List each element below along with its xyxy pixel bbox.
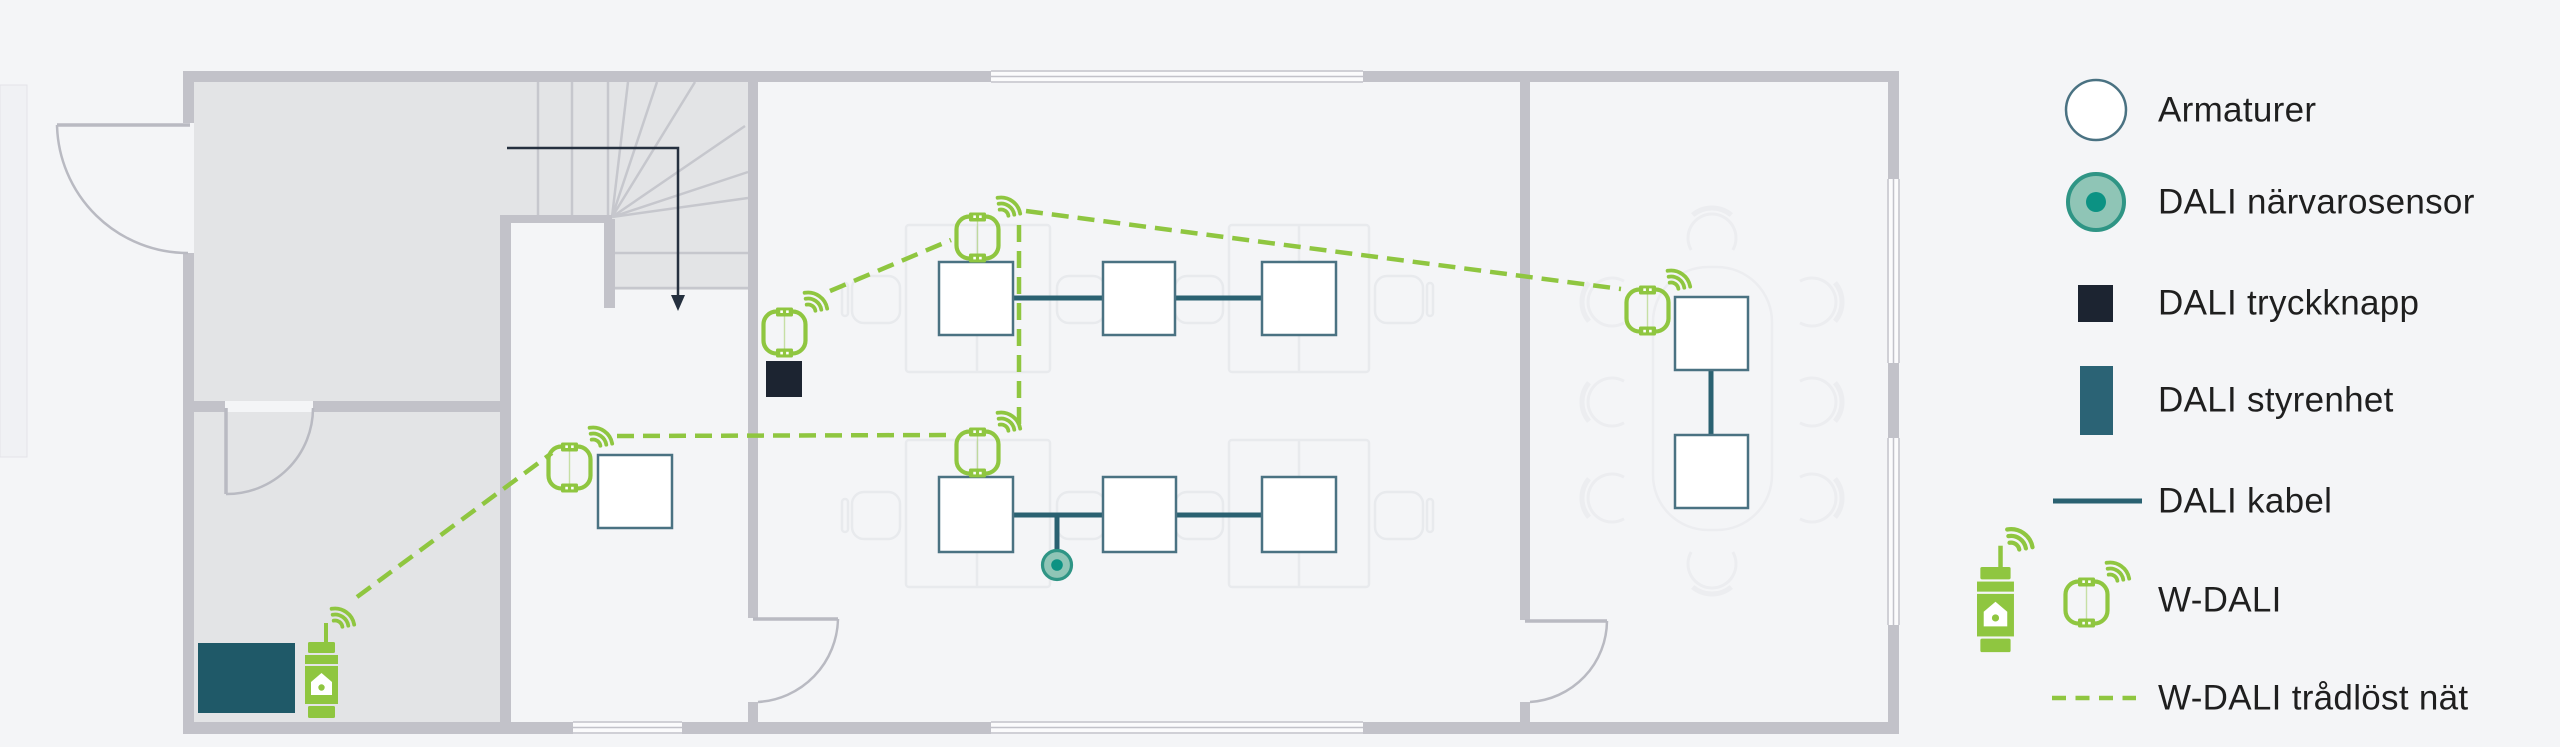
wall-left-rooms	[500, 219, 511, 722]
legend-label: DALI kabel	[2158, 482, 2332, 521]
wall-right	[1888, 71, 1899, 734]
armature-luminaire	[939, 262, 1013, 335]
control-unit	[198, 643, 295, 713]
legend-label: W-DALI	[2158, 581, 2282, 620]
armature-luminaire	[598, 455, 672, 528]
wall-office-left-stub	[748, 702, 758, 722]
armature-luminaire	[1103, 477, 1176, 552]
wall-stair-stub	[604, 219, 615, 308]
control-unit-icon	[2080, 366, 2113, 435]
armature-icon	[2066, 80, 2126, 140]
armature-luminaire	[1675, 297, 1748, 370]
wall-office-right-stub	[1520, 702, 1530, 722]
legend-label: DALI närvarosensor	[2158, 183, 2475, 222]
window-right-upper	[1887, 179, 1900, 363]
presence-sensor-icon	[2068, 174, 2124, 230]
exterior-strip	[0, 85, 27, 457]
push-button	[766, 361, 802, 397]
window-bottom-office	[991, 721, 1363, 734]
window-top	[991, 70, 1363, 83]
wall-left-lower	[183, 253, 194, 734]
presence-sensor	[1043, 551, 1072, 580]
armature-luminaire	[1262, 262, 1336, 335]
push-button-icon	[2078, 285, 2113, 322]
window-right-lower	[1887, 438, 1900, 625]
wall-room-divider-left	[183, 401, 225, 412]
page: Armaturer DALI närvarosensor DALI tryckk…	[0, 0, 2560, 747]
legend-label: DALI tryckknapp	[2158, 284, 2419, 323]
window-bottom-corridor	[573, 721, 682, 734]
armature-luminaire	[1103, 262, 1175, 335]
stair-lower-flight-fill	[613, 219, 748, 290]
armature-luminaire	[1262, 477, 1336, 552]
legend-label: W-DALI trådlöst nät	[2158, 679, 2468, 718]
room-upper-left-lower	[194, 219, 500, 401]
armature-luminaire	[1675, 435, 1748, 508]
wall-room-divider-right	[313, 401, 511, 412]
armature-luminaire	[939, 477, 1013, 552]
wall-office-right	[1520, 82, 1530, 620]
wall-stair-landing	[500, 215, 612, 223]
legend-label: Armaturer	[2158, 91, 2316, 130]
wall-left-upper	[183, 71, 194, 123]
wall-office-left	[748, 82, 758, 618]
floor-plan-diagram: Armaturer DALI närvarosensor DALI tryckk…	[0, 0, 2560, 747]
legend-label: DALI styrenhet	[2158, 381, 2394, 420]
